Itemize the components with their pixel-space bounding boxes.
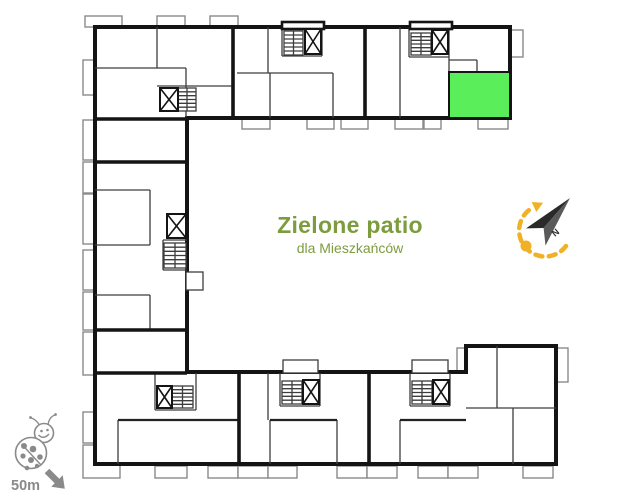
scale-direction-arrow-icon <box>45 469 65 489</box>
ladybug-spot <box>20 453 25 458</box>
patio-label: Zielone patio dla Mieszkańców <box>277 212 423 256</box>
balcony <box>337 466 367 478</box>
balcony <box>238 466 268 478</box>
ladybug-spot <box>37 454 43 460</box>
balcony <box>418 466 448 478</box>
elevator-symbol <box>305 29 321 54</box>
ladybug-antenna-tip <box>54 413 57 416</box>
elevator-symbol <box>157 386 172 408</box>
stairs-symbol <box>172 386 193 408</box>
stairs-symbol <box>412 381 432 404</box>
elevator-symbol <box>167 214 186 238</box>
ladybug-spot <box>35 464 39 468</box>
patio-subtitle: dla Mieszkańców <box>277 240 423 256</box>
elevator-symbol <box>303 380 319 404</box>
stairs-symbol <box>411 33 431 55</box>
balcony <box>448 466 478 478</box>
entry-landing <box>186 272 203 290</box>
compass-dot <box>521 241 532 252</box>
stairs-symbol <box>282 381 302 404</box>
stairs-symbol <box>164 243 186 268</box>
ladybug-spot <box>30 446 37 453</box>
elevator-symbol <box>432 30 448 54</box>
ladybug-spot <box>28 457 34 463</box>
ladybug-antenna <box>48 415 55 425</box>
ladybug-antenna-tip <box>29 416 32 419</box>
balcony <box>523 466 553 478</box>
stairs-symbol <box>284 31 303 55</box>
compass-arc-arrowhead-icon <box>532 202 543 212</box>
compass-icon: N <box>519 198 570 256</box>
north-label: N <box>550 227 561 239</box>
stair-landing <box>410 22 452 29</box>
elevator-symbol <box>433 380 449 404</box>
balcony <box>208 466 238 478</box>
ladybug-body <box>16 438 47 469</box>
ladybug-icon <box>16 413 57 470</box>
ladybug-eye <box>40 430 43 433</box>
entry-landing <box>412 360 448 373</box>
entry-landing <box>283 360 318 373</box>
highlighted-unit[interactable] <box>449 72 510 118</box>
stair-landing <box>282 22 324 29</box>
scale-distance-label: 50m <box>11 478 40 494</box>
balcony <box>367 466 397 478</box>
ladybug-spot <box>25 466 30 471</box>
stairs-symbol <box>178 88 196 111</box>
balcony <box>268 466 297 478</box>
ladybug-eye <box>46 429 49 432</box>
site-plan-page: N 50m Zielone patio dla Mieszka <box>0 0 630 500</box>
ladybug-spot <box>21 443 27 449</box>
patio-title: Zielone patio <box>277 212 423 239</box>
elevator-symbol <box>160 88 178 111</box>
balcony <box>155 466 187 478</box>
